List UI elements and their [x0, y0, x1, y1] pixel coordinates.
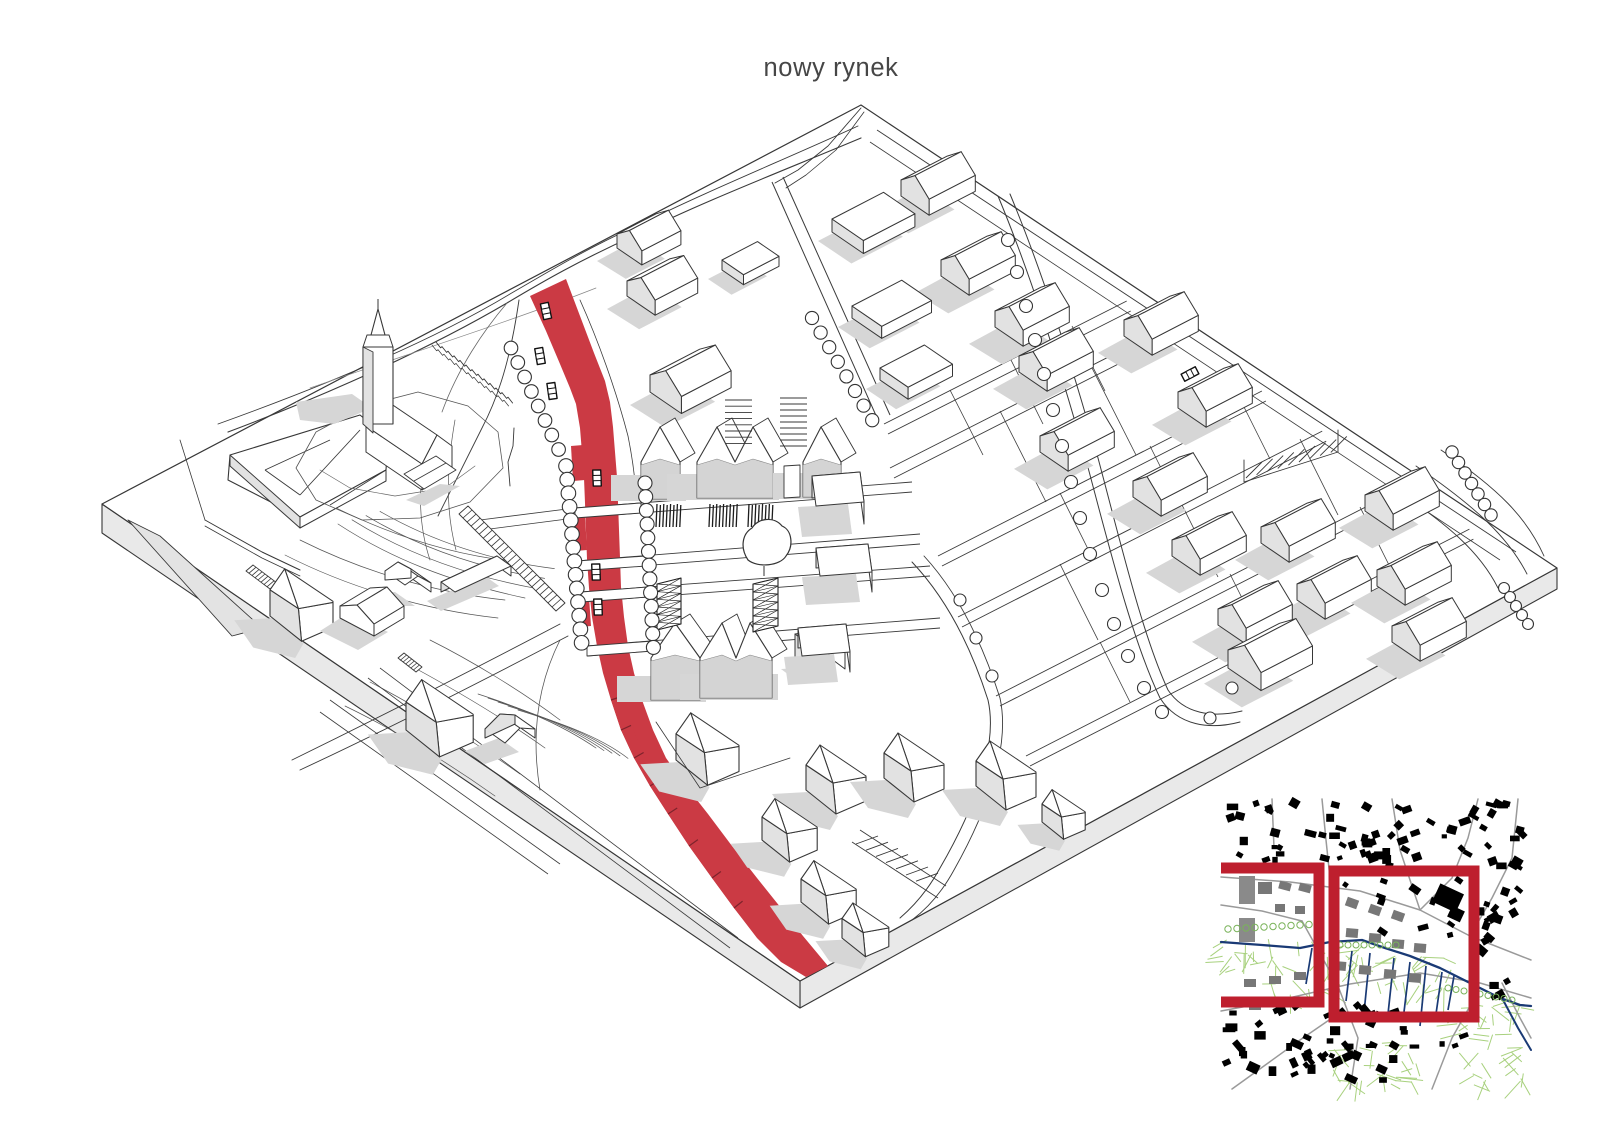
svg-text:nowy rynek: nowy rynek — [764, 54, 899, 82]
